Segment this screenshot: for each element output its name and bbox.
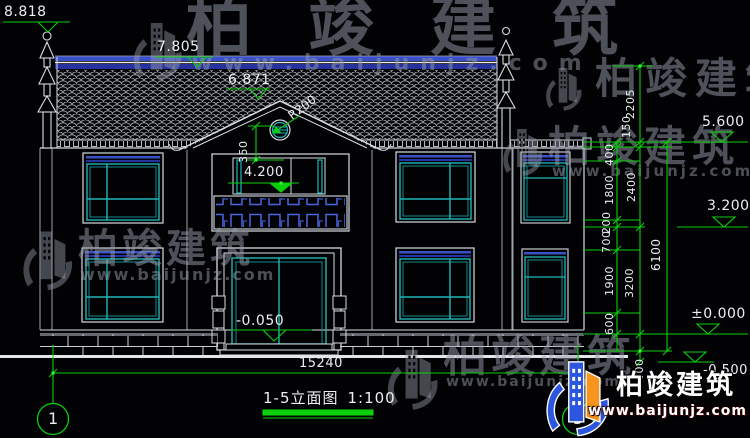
dim-label-overall-height: 6100 xyxy=(650,238,662,271)
grid-bubble-1-label: 1 xyxy=(48,411,58,427)
dim-chain-inner-3: 700 xyxy=(601,231,612,254)
dim-chain-inner-4: 1900 xyxy=(604,266,615,296)
elevation-label-gable-ridge: 6.871 xyxy=(228,73,271,87)
site-logo-url: www.baijunjz.com xyxy=(588,404,747,418)
elevation-label-second-floor: 3.200 xyxy=(707,199,750,213)
dim-label-round-window-radius: R200 xyxy=(286,93,318,121)
dim-chain-inner-0: 400 xyxy=(604,144,615,167)
elevation-label-ridge-ornament: 8.818 xyxy=(4,5,47,19)
dim-label-gable-rise: 350 xyxy=(238,141,249,164)
dim-chain-outer-0: 2205 xyxy=(625,89,636,119)
elevation-label-eave: 5.600 xyxy=(702,115,745,129)
dim-chain-outer-1: 150 xyxy=(621,116,632,139)
site-logo-brand: 柏竣建筑 xyxy=(616,372,736,399)
dim-chain-inner-1: 1800 xyxy=(604,175,615,205)
elevation-label-balcony: 4.200 xyxy=(244,166,284,179)
site-logo-icon xyxy=(543,355,613,438)
dim-label-overall-width: 15240 xyxy=(299,357,343,370)
elevation-label-ground-floor: ±0.000 xyxy=(691,307,746,321)
dim-chain-outer-3: 3200 xyxy=(624,268,635,298)
drawing-title-name: 1-5立面图 xyxy=(263,389,339,407)
drawing-title: 1-5立面图1:100 xyxy=(263,391,405,406)
drawing-title-scale: 1:100 xyxy=(348,389,396,407)
dim-chain-inner-5: 600 xyxy=(604,313,615,336)
elevation-label-main-ridge: 7.805 xyxy=(157,40,200,54)
cad-elevation-drawing: 柏竣建筑 www.baijunjz.com 柏竣建筑 柏竣建筑 www.baij… xyxy=(0,0,750,438)
dim-chain-outer-2: 2400 xyxy=(626,172,637,202)
elevation-label-entrance: -0.050 xyxy=(236,314,284,328)
